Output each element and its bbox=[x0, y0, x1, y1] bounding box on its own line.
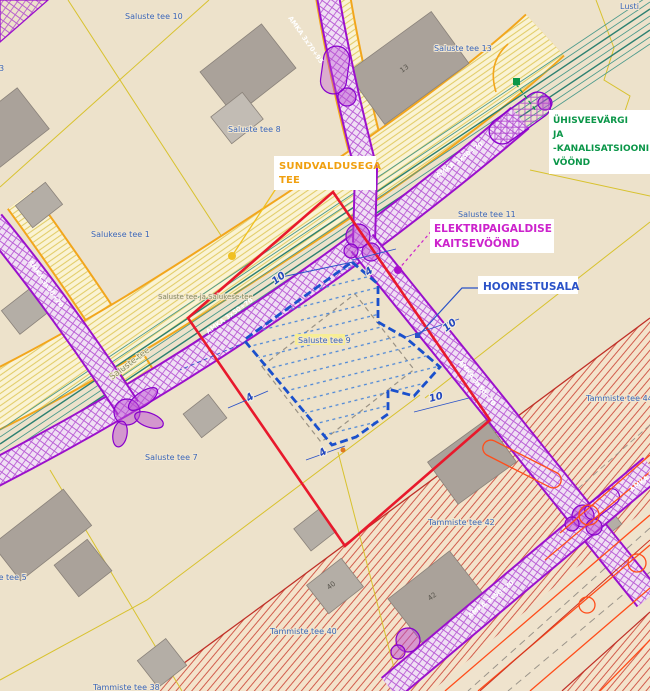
elekter-label-line1: ELEKTRIPAIGALDISE bbox=[434, 223, 552, 235]
veevark-label-line3: -KANALISATSIOONI bbox=[553, 144, 649, 154]
parcel-label-saluste-9: Saluste tee 9 bbox=[298, 336, 351, 345]
parcel-label-tammiste-44: Tammiste tee 44 bbox=[585, 394, 650, 403]
parcel-label-saluste-7: Saluste tee 7 bbox=[145, 453, 198, 462]
sundvaldusega-label-line2: TEE bbox=[279, 175, 300, 186]
parcel-label-salukese-1: Salukese tee 1 bbox=[91, 230, 150, 239]
plan-map-canvas[interactable]: SUNDVALDUSEGA TEE ÜHISVEEVÄRGI JA -KANAL… bbox=[0, 0, 650, 691]
hoonestusala-label: HOONESTUSALA bbox=[483, 281, 580, 293]
veevark-label-line2: JA bbox=[552, 130, 563, 140]
parcel-label-tammiste-38: Tammiste tee 38 bbox=[92, 683, 160, 691]
detail-plan-map[interactable]: SUNDVALDUSEGA TEE ÜHISVEEVÄRGI JA -KANAL… bbox=[0, 0, 650, 691]
parcel-label-saluste-10: Saluste tee 10 bbox=[125, 12, 183, 21]
parcel-label-tammiste-42: Tammiste tee 42 bbox=[427, 518, 495, 527]
sundvaldus-marker-dot bbox=[228, 252, 236, 260]
sundvaldusega-label-line1: SUNDVALDUSEGA bbox=[279, 161, 381, 172]
hoonestusala-marker-dot bbox=[415, 333, 420, 338]
veevark-label-line1: ÜHISVEEVÄRGI bbox=[553, 115, 628, 126]
veevark-label-line4: VÖÖND bbox=[553, 157, 590, 168]
parcel-label-road-parcel: Saluste tee ja Salukese tee bbox=[158, 293, 253, 301]
parcel-label-saluste-11: Saluste tee 11 bbox=[458, 210, 516, 219]
parcel-label-saluste-8: Saluste tee 8 bbox=[228, 125, 281, 134]
parcel-label-tammiste-40: Tammiste tee 40 bbox=[269, 627, 337, 636]
parcel-label-edge: 3 bbox=[0, 64, 4, 73]
water-marker-dot bbox=[513, 78, 520, 85]
elekter-label-line2: KAITSEVÖÖND bbox=[434, 236, 520, 250]
parcel-label-saluste-13: Saluste tee 13 bbox=[434, 44, 492, 53]
parcel-label-saluste-5: Saluste tee 5 bbox=[0, 573, 27, 582]
parcel-label-corner: Lusti bbox=[620, 2, 639, 11]
elektri-marker-dot bbox=[394, 266, 402, 274]
